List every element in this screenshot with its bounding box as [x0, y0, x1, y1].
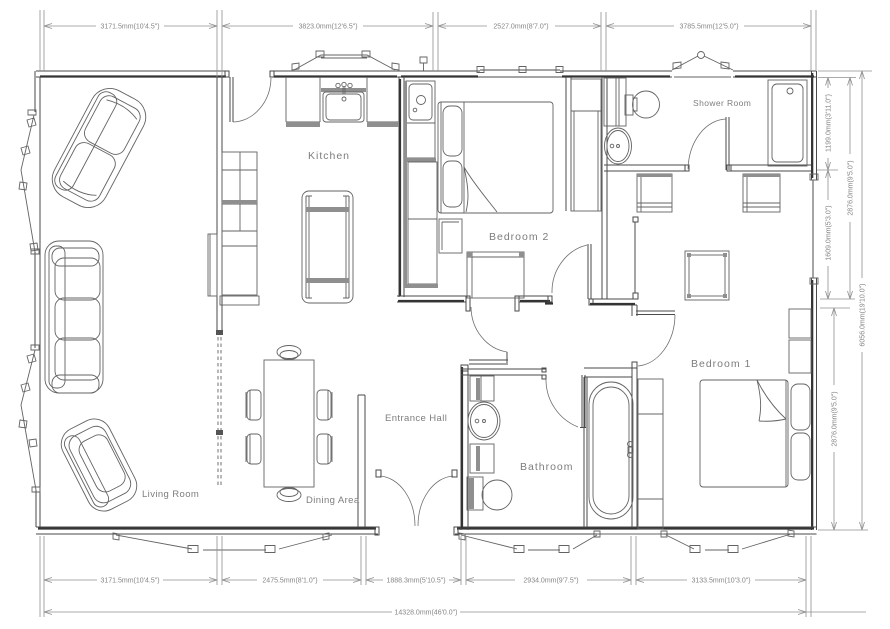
svg-text:3171.5mm(10'4.5"): 3171.5mm(10'4.5") — [100, 578, 159, 585]
svg-text:2475.5mm(8'1.0"): 2475.5mm(8'1.0") — [262, 578, 317, 585]
svg-text:Living Room: Living Room — [142, 489, 199, 500]
svg-text:Entrance Hall: Entrance Hall — [385, 413, 447, 424]
svg-text:2876.0mm(9'5.0"): 2876.0mm(9'5.0") — [832, 391, 839, 446]
svg-text:3171.5mm(10'4.5"): 3171.5mm(10'4.5") — [100, 24, 159, 31]
svg-text:Kitchen: Kitchen — [308, 150, 350, 162]
svg-text:2934.0mm(9'7.5"): 2934.0mm(9'7.5") — [523, 578, 578, 585]
svg-text:Dining Area: Dining Area — [306, 495, 360, 506]
svg-text:2527.0mm(8'7.0"): 2527.0mm(8'7.0") — [493, 24, 548, 31]
svg-text:3133.5mm(10'3.0"): 3133.5mm(10'3.0") — [691, 578, 750, 585]
svg-text:Bedroom 1: Bedroom 1 — [691, 358, 751, 370]
svg-text:1888.3mm(5'10.5"): 1888.3mm(5'10.5") — [386, 578, 445, 585]
svg-text:3785.5mm(12'5.0"): 3785.5mm(12'5.0") — [679, 24, 738, 31]
svg-text:Bathroom: Bathroom — [520, 461, 574, 473]
svg-text:6056.0mm(19'10.0"): 6056.0mm(19'10.0") — [860, 284, 867, 347]
svg-text:1609.0mm(5'3.0"): 1609.0mm(5'3.0") — [826, 205, 833, 260]
svg-text:1199.0mm(3'11.0"): 1199.0mm(3'11.0") — [826, 94, 833, 152]
svg-text:14328.0mm(46'0.0"): 14328.0mm(46'0.0") — [395, 610, 458, 617]
svg-text:Bedroom 2: Bedroom 2 — [489, 231, 549, 243]
svg-text:Shower Room: Shower Room — [693, 98, 751, 108]
svg-text:2876.0mm(9'5.0"): 2876.0mm(9'5.0") — [848, 160, 855, 215]
svg-text:3823.0mm(12'6.5"): 3823.0mm(12'6.5") — [298, 24, 357, 31]
